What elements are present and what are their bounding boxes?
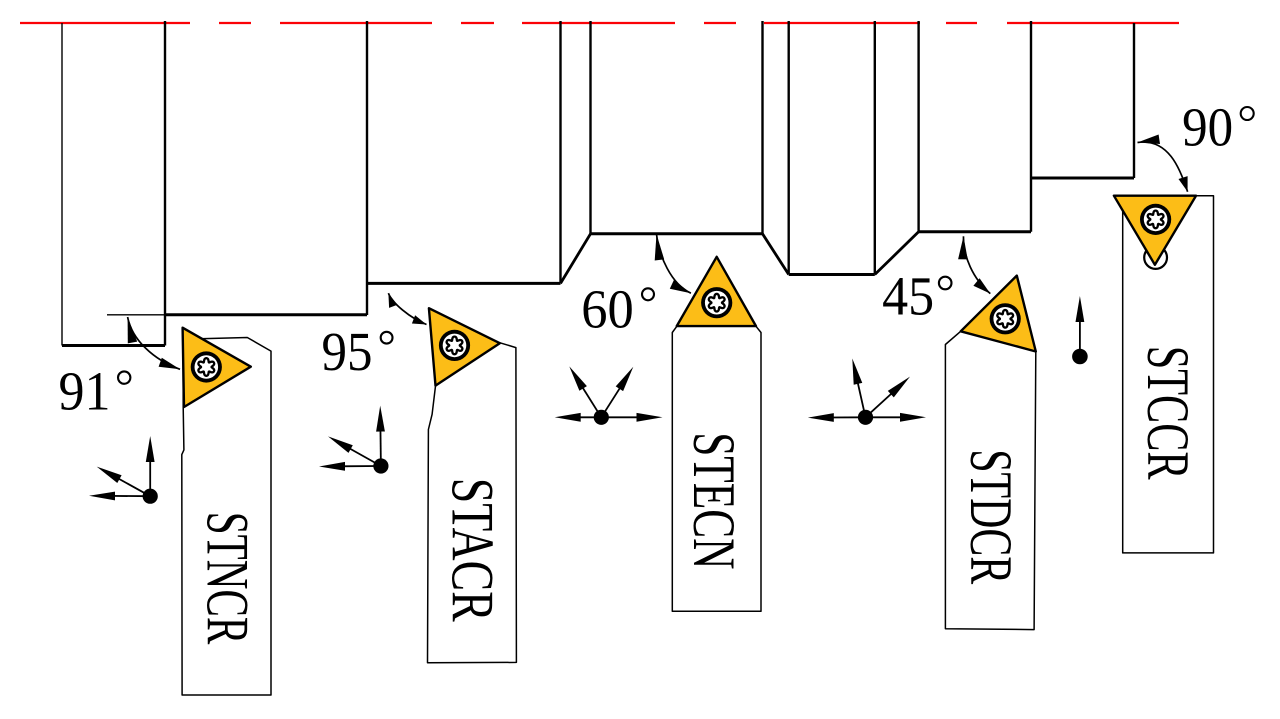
svg-text:90: 90 (1182, 96, 1233, 157)
svg-text:STCCR: STCCR (1135, 346, 1201, 480)
svg-text:STECN: STECN (681, 432, 747, 569)
svg-text:60: 60 (581, 279, 634, 340)
svg-text:91: 91 (59, 360, 111, 421)
svg-text:STACR: STACR (439, 478, 505, 622)
svg-text:95: 95 (322, 321, 373, 382)
svg-text:STDCR: STDCR (958, 449, 1024, 584)
svg-text:STNCR: STNCR (195, 512, 261, 645)
svg-text:45: 45 (882, 266, 934, 327)
